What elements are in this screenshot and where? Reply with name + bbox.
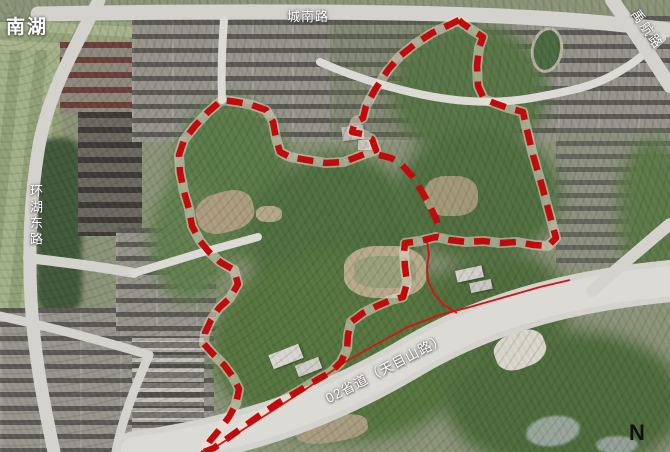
road-southwest-1 bbox=[0, 316, 149, 355]
road-branch-west bbox=[28, 258, 134, 273]
label-chengnan-road: 城南路 bbox=[287, 6, 329, 25]
label-huanhu-east-road: 环湖东路 bbox=[26, 184, 45, 248]
satellite-map: 南湖 城南路 环湖东路 02省道（天目山路） 禹航路 N bbox=[0, 0, 670, 452]
north-indicator: N bbox=[629, 420, 645, 446]
street-vertical bbox=[222, 20, 224, 100]
label-nanhu-lake: 南湖 bbox=[6, 12, 48, 39]
road-chengnan bbox=[38, 12, 670, 30]
boundary-inner-divider bbox=[379, 155, 441, 233]
boundary-access-loop bbox=[427, 241, 457, 313]
